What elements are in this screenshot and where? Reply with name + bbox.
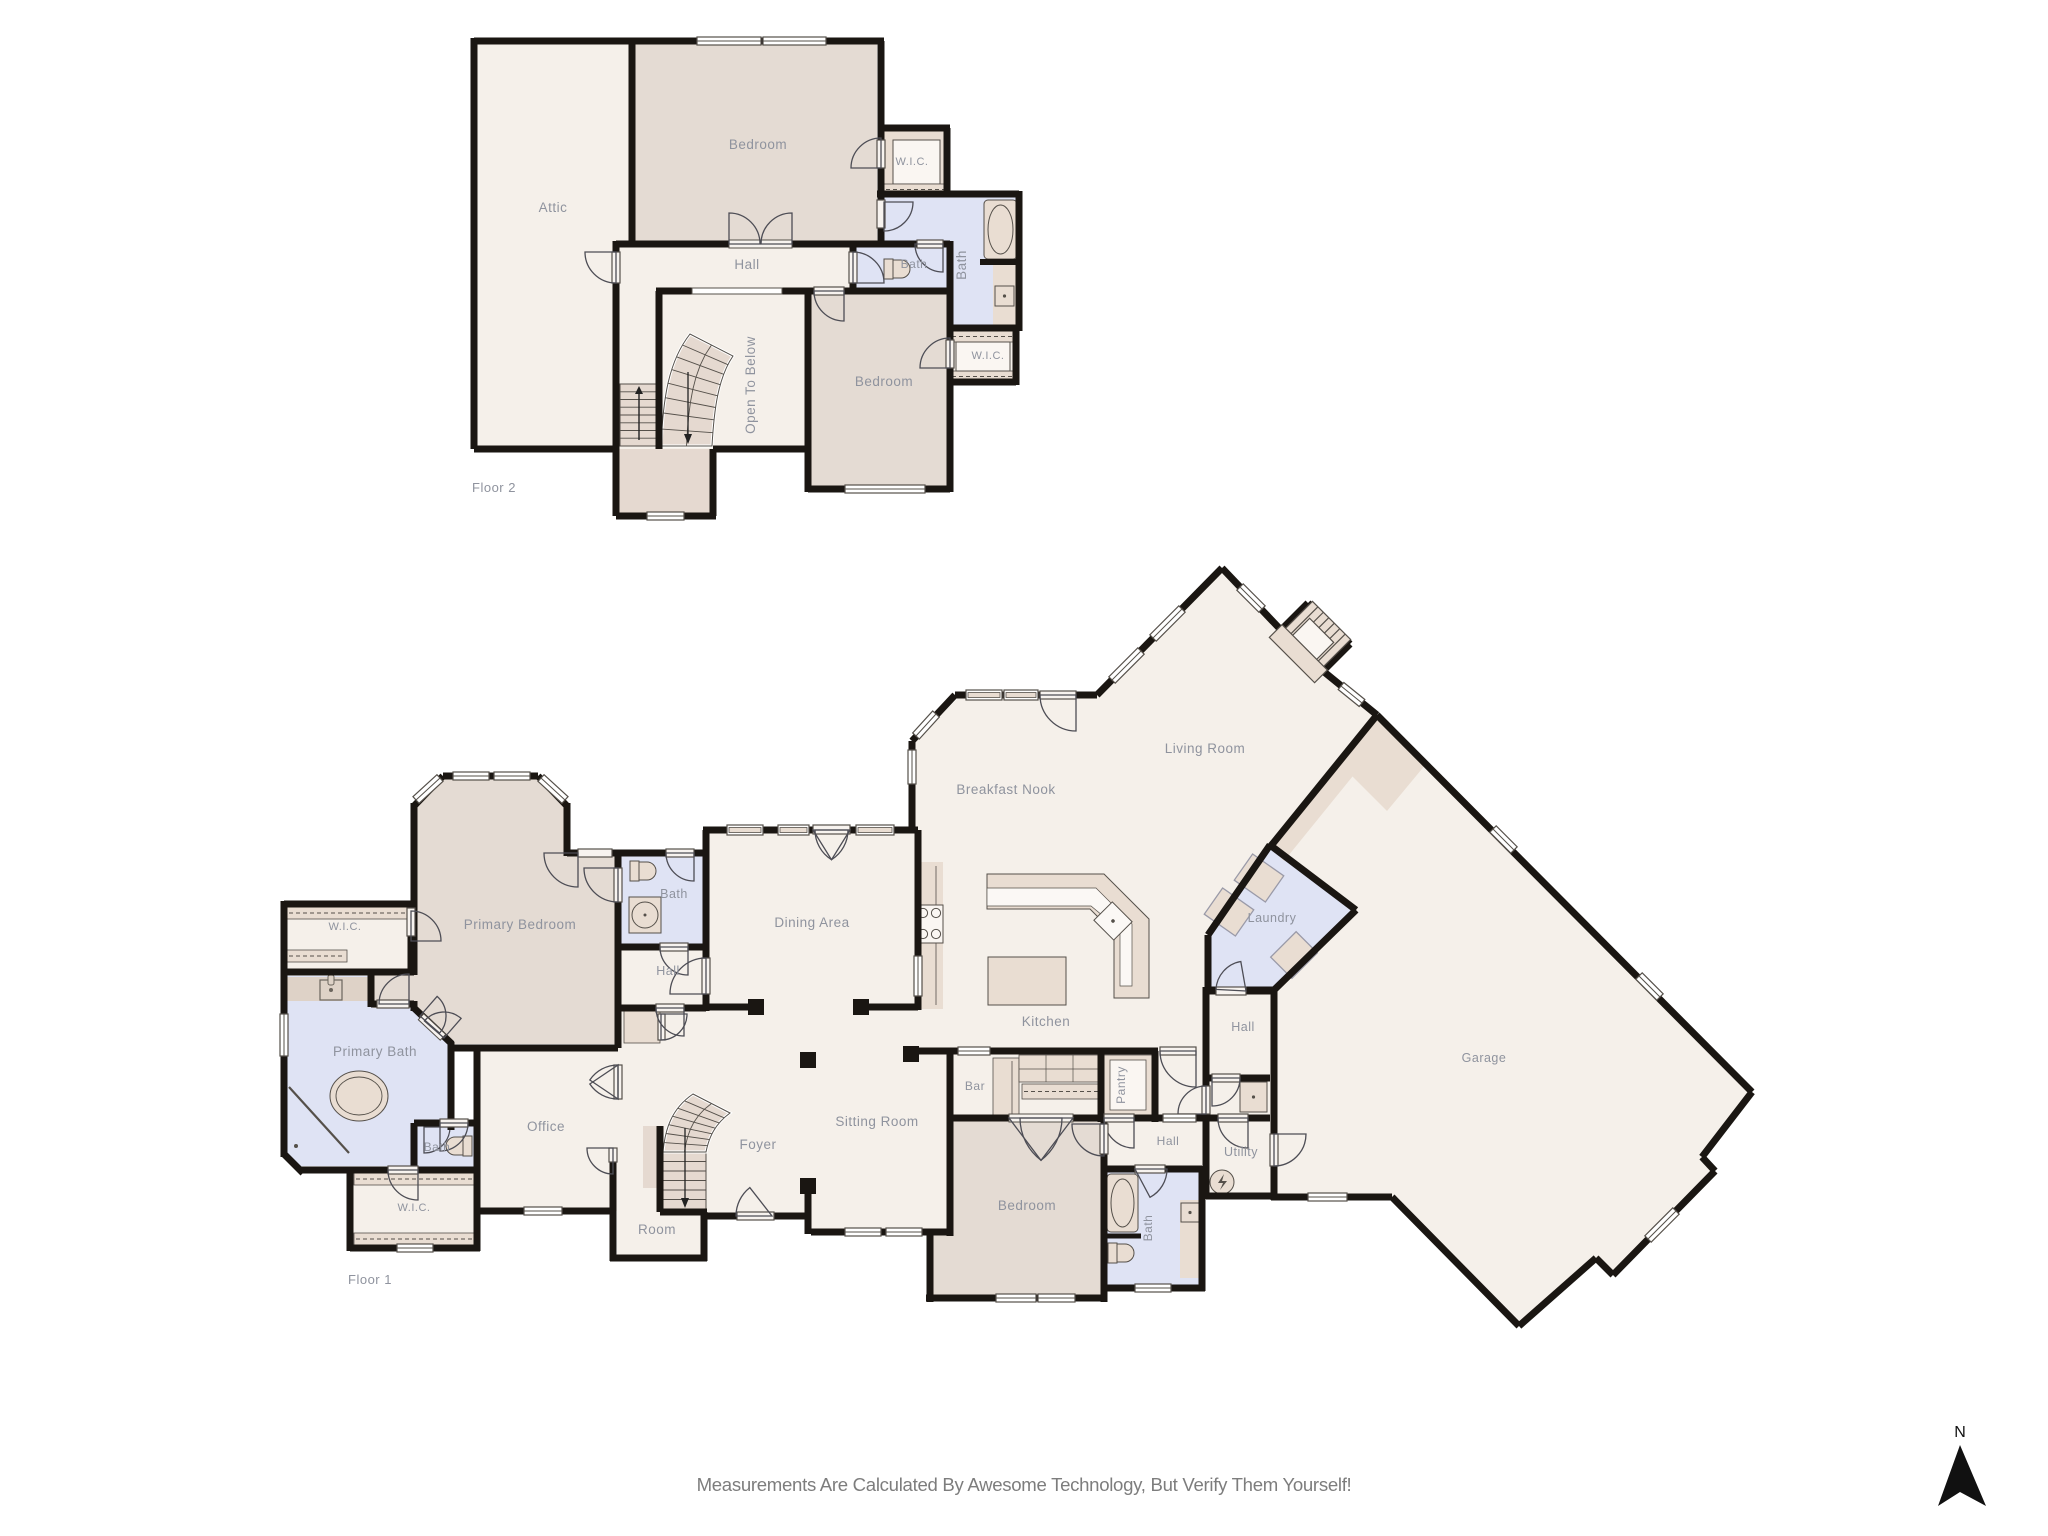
- svg-text:Bedroom: Bedroom: [729, 137, 787, 152]
- svg-text:W.I.C.: W.I.C.: [896, 156, 929, 168]
- svg-text:Dining Area: Dining Area: [774, 915, 849, 930]
- svg-text:Pantry: Pantry: [1114, 1066, 1128, 1104]
- svg-text:Hall: Hall: [656, 964, 680, 978]
- svg-text:W.I.C.: W.I.C.: [329, 921, 362, 933]
- svg-text:Attic: Attic: [539, 200, 568, 215]
- svg-text:N: N: [1954, 1424, 1966, 1441]
- svg-text:Bedroom: Bedroom: [855, 374, 913, 389]
- svg-text:Measurements Are Calculated By: Measurements Are Calculated By Awesome T…: [697, 1474, 1352, 1495]
- svg-text:Bedroom: Bedroom: [998, 1198, 1056, 1213]
- svg-text:Primary Bedroom: Primary Bedroom: [464, 917, 577, 932]
- svg-text:Garage: Garage: [1462, 1051, 1507, 1065]
- svg-text:Breakfast Nook: Breakfast Nook: [956, 782, 1055, 797]
- svg-text:W.I.C.: W.I.C.: [972, 350, 1005, 362]
- svg-text:Office: Office: [527, 1119, 565, 1134]
- svg-text:Laundry: Laundry: [1248, 911, 1297, 925]
- svg-text:Kitchen: Kitchen: [1022, 1014, 1071, 1029]
- svg-text:Room: Room: [638, 1222, 676, 1237]
- svg-text:Hall: Hall: [1157, 1134, 1180, 1148]
- svg-text:Bar: Bar: [965, 1079, 985, 1093]
- svg-text:Utility: Utility: [1224, 1145, 1258, 1159]
- svg-text:Bath: Bath: [901, 257, 928, 271]
- svg-text:Open To Below: Open To Below: [743, 336, 758, 434]
- svg-text:Foyer: Foyer: [739, 1137, 776, 1152]
- svg-text:Bath: Bath: [1141, 1215, 1155, 1242]
- svg-text:Bath: Bath: [954, 250, 969, 280]
- svg-text:Floor 2: Floor 2: [472, 480, 516, 495]
- svg-text:Bath: Bath: [424, 1140, 451, 1154]
- svg-text:Living Room: Living Room: [1165, 741, 1246, 756]
- svg-text:Bath: Bath: [660, 887, 688, 901]
- svg-text:Hall: Hall: [1231, 1020, 1255, 1034]
- svg-text:Sitting Room: Sitting Room: [835, 1114, 918, 1129]
- svg-text:W.I.C.: W.I.C.: [398, 1202, 431, 1214]
- svg-text:Hall: Hall: [734, 257, 759, 272]
- svg-text:Floor 1: Floor 1: [348, 1272, 392, 1287]
- svg-text:Primary Bath: Primary Bath: [333, 1044, 417, 1059]
